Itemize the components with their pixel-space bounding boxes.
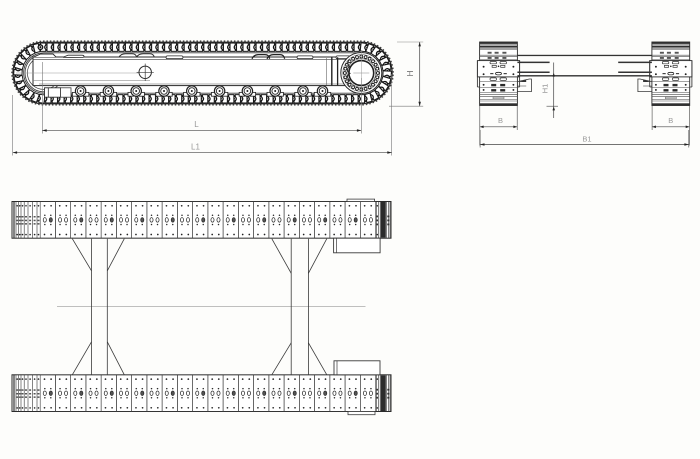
svg-text:B: B bbox=[668, 116, 673, 125]
svg-text:B1: B1 bbox=[582, 135, 591, 144]
svg-text:L: L bbox=[194, 120, 199, 129]
svg-text:B: B bbox=[498, 116, 503, 125]
svg-text:L1: L1 bbox=[191, 142, 200, 151]
svg-text:H1: H1 bbox=[541, 84, 550, 94]
svg-text:H: H bbox=[405, 70, 415, 76]
